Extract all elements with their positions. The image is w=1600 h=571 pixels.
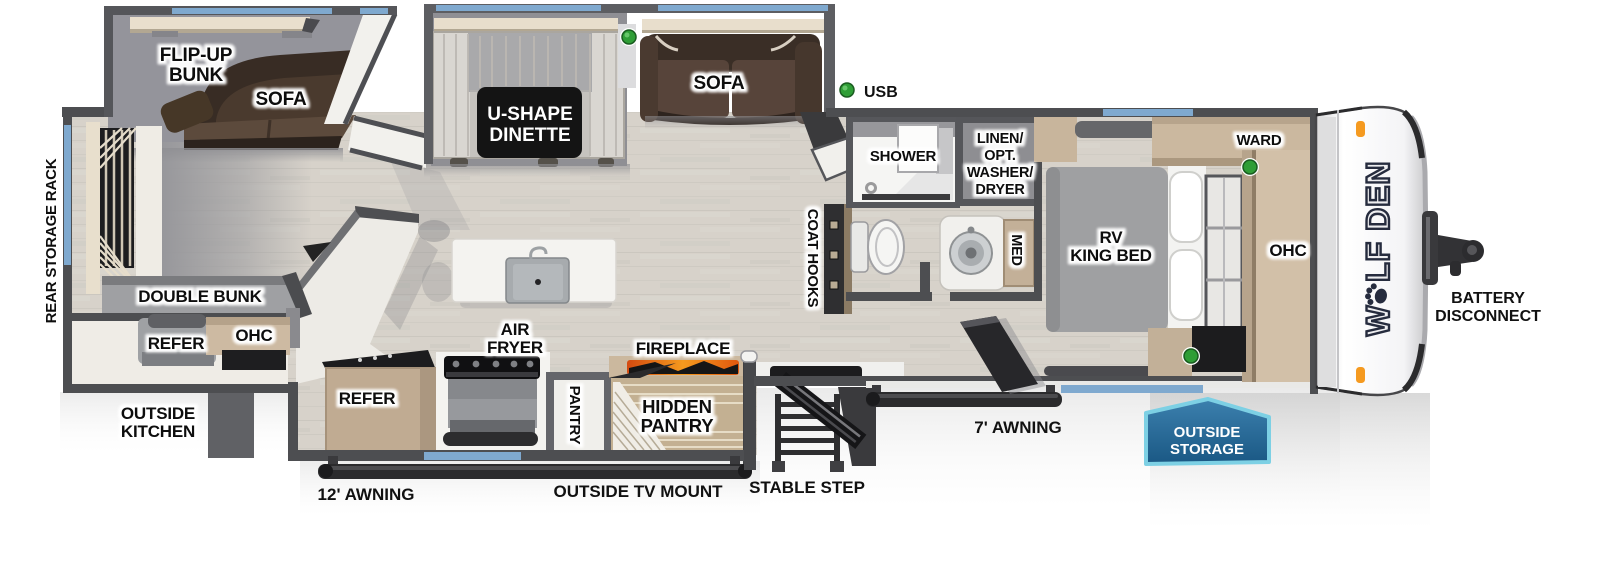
svg-text:STORAGE: STORAGE: [1170, 441, 1244, 458]
svg-text:FIREPLACE: FIREPLACE: [636, 339, 731, 358]
svg-text:DRYER: DRYER: [975, 182, 1025, 198]
svg-text:STABLE STEP: STABLE STEP: [749, 478, 865, 497]
svg-text:DINETTE: DINETTE: [489, 125, 570, 146]
svg-text:OHC: OHC: [1269, 241, 1306, 260]
svg-text:HIDDEN: HIDDEN: [642, 396, 712, 417]
svg-text:DOUBLE BUNK: DOUBLE BUNK: [138, 287, 262, 306]
svg-text:PANTRY: PANTRY: [641, 415, 715, 436]
svg-text:OPT.: OPT.: [984, 148, 1016, 164]
svg-text:KITCHEN: KITCHEN: [121, 422, 195, 441]
svg-text:U-SHAPE: U-SHAPE: [487, 104, 573, 125]
svg-text:SHOWER: SHOWER: [870, 148, 937, 165]
svg-text:REAR STORAGE RACK: REAR STORAGE RACK: [43, 158, 60, 323]
svg-text:LF DEN: LF DEN: [1360, 160, 1396, 282]
svg-text:DISCONNECT: DISCONNECT: [1435, 308, 1541, 325]
svg-text:SOFA: SOFA: [256, 89, 307, 110]
svg-text:OHC: OHC: [235, 326, 272, 345]
svg-text:PANTRY: PANTRY: [566, 386, 583, 445]
svg-text:7' AWNING: 7' AWNING: [974, 418, 1061, 437]
svg-text:COAT HOOKS: COAT HOOKS: [804, 209, 821, 308]
svg-text:BUNK: BUNK: [169, 65, 224, 86]
svg-text:W: W: [1360, 305, 1396, 336]
svg-text:WASHER/: WASHER/: [967, 165, 1033, 181]
svg-text:MED: MED: [1008, 234, 1024, 266]
svg-text:SOFA: SOFA: [694, 73, 745, 94]
svg-text:12' AWNING: 12' AWNING: [318, 485, 415, 504]
svg-text:AIR: AIR: [501, 320, 530, 339]
svg-text:OUTSIDE: OUTSIDE: [121, 404, 195, 423]
svg-text:REFER: REFER: [339, 389, 396, 408]
svg-text:OUTSIDE: OUTSIDE: [1174, 424, 1241, 441]
svg-text:REFER: REFER: [148, 334, 205, 353]
svg-text:USB: USB: [864, 84, 898, 101]
svg-text:FLIP-UP: FLIP-UP: [160, 45, 233, 66]
svg-text:LINEN/: LINEN/: [977, 131, 1024, 147]
svg-text:KING BED: KING BED: [1070, 246, 1152, 265]
svg-text:FRYER: FRYER: [487, 338, 543, 357]
svg-text:RV: RV: [1100, 228, 1124, 247]
svg-text:BATTERY: BATTERY: [1451, 290, 1525, 307]
svg-text:OUTSIDE TV MOUNT: OUTSIDE TV MOUNT: [553, 482, 723, 501]
svg-text:WARD: WARD: [1236, 132, 1281, 149]
